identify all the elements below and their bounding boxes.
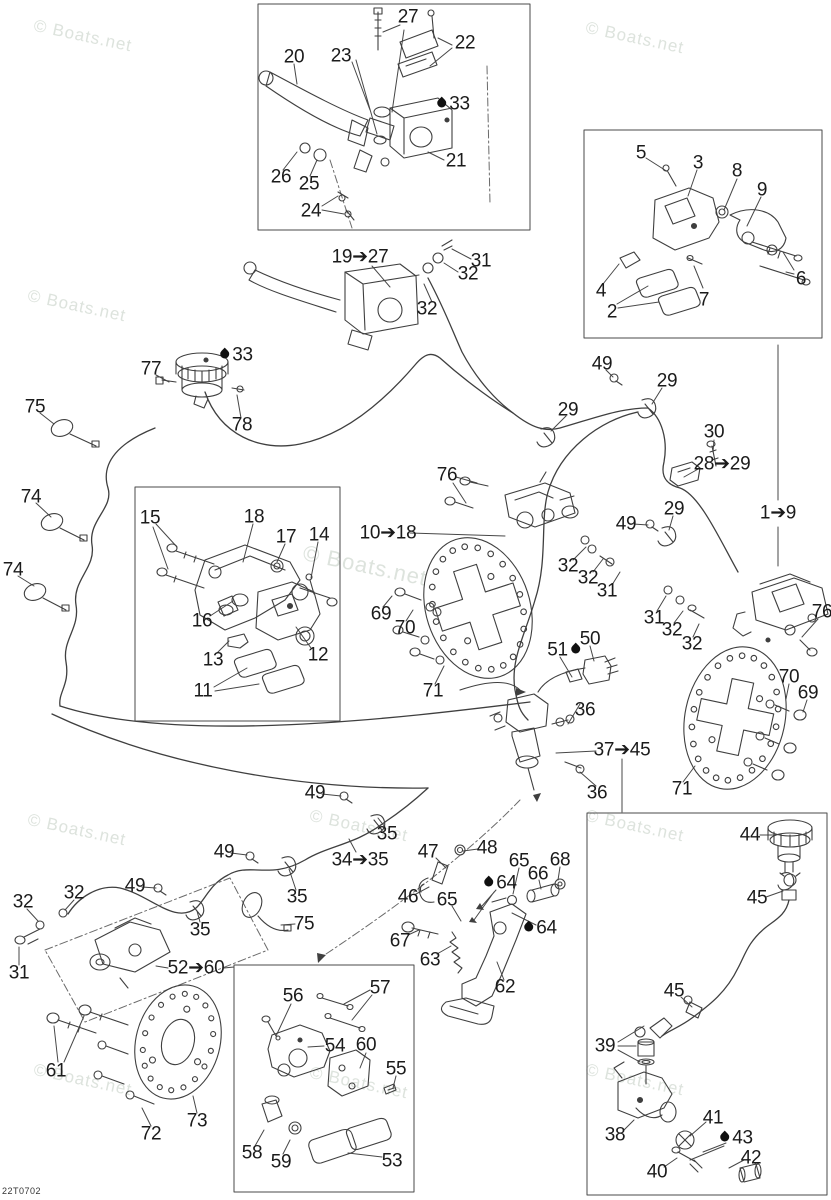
callout-label: 69 <box>371 605 392 624</box>
callout-label: 41 <box>703 1109 724 1128</box>
callout-number: 69 <box>371 605 392 624</box>
callout-label: 32 <box>578 569 599 588</box>
callout-number: 31 <box>9 964 30 983</box>
callout-number: 78 <box>232 416 253 435</box>
callout-label: 40 <box>647 1163 668 1182</box>
callout-number: 47 <box>418 843 439 862</box>
callout-label: 10➔18 <box>360 524 417 543</box>
callout-label: 35 <box>377 825 398 844</box>
callout-number: 33 <box>449 95 470 114</box>
callout-label: 77 <box>141 360 162 379</box>
callout-label: 42 <box>741 1149 762 1168</box>
callout-number: 40 <box>647 1163 668 1182</box>
callout-label: 29 <box>558 401 579 420</box>
callout-label: 76 <box>437 466 458 485</box>
callout-label: 67 <box>390 932 411 951</box>
callout-label: 64 <box>483 874 517 893</box>
callout-label: 3 <box>693 154 703 173</box>
callout-number: 35 <box>377 825 398 844</box>
callout-number: 8 <box>732 162 742 181</box>
callout-label: 19➔27 <box>332 248 389 267</box>
callout-number: 28➔29 <box>694 455 751 474</box>
callout-number: 1➔9 <box>760 504 796 523</box>
callout-label: 44 <box>740 826 761 845</box>
callout-label: 35 <box>190 921 211 940</box>
callout-number: 70 <box>779 668 800 687</box>
callout-number: 32 <box>13 893 34 912</box>
callout-number: 25 <box>299 175 320 194</box>
callout-number: 49 <box>125 877 146 896</box>
callout-label: 14 <box>309 526 330 545</box>
callout-number: 74 <box>21 488 42 507</box>
callout-number: 44 <box>740 826 761 845</box>
callout-label: 30 <box>704 423 725 442</box>
callout-number: 32 <box>578 569 599 588</box>
callout-number: 51 <box>547 641 568 660</box>
callout-label: 65 <box>437 891 458 910</box>
callout-number: 75 <box>294 915 315 934</box>
callout-label: 70 <box>395 619 416 638</box>
callout-label: 21 <box>446 152 467 171</box>
callout-number: 20 <box>284 48 305 67</box>
callout-number: 31 <box>597 582 618 601</box>
callout-number: 22 <box>455 34 476 53</box>
callout-number: 32 <box>682 635 703 654</box>
callout-number: 58 <box>242 1144 263 1163</box>
callout-number: 39 <box>595 1037 616 1056</box>
callout-number: 43 <box>732 1129 753 1148</box>
callout-label: 57 <box>370 979 391 998</box>
callout-number: 54 <box>325 1037 346 1056</box>
callout-number: 61 <box>46 1062 67 1081</box>
callout-label: 32 <box>662 621 683 640</box>
callout-number: 63 <box>420 951 441 970</box>
callout-label: 16 <box>192 612 213 631</box>
callout-number: 12 <box>308 646 329 665</box>
callout-label: 78 <box>232 416 253 435</box>
callout-number: 76 <box>812 603 831 622</box>
callout-label: 28➔29 <box>694 455 751 474</box>
callout-label: 60 <box>356 1036 377 1055</box>
callout-number: 11 <box>193 682 212 701</box>
callout-label: 58 <box>242 1144 263 1163</box>
callout-number: 5 <box>636 144 646 163</box>
callout-label: 68 <box>550 851 571 870</box>
callout-number: 29 <box>558 401 579 420</box>
callout-label: 53 <box>382 1152 403 1171</box>
callout-number: 30 <box>704 423 725 442</box>
callout-number: 33 <box>232 346 253 365</box>
callout-label: 5 <box>636 144 646 163</box>
callout-number: 69 <box>798 684 819 703</box>
callout-label: 47 <box>418 843 439 862</box>
callout-number: 32 <box>417 300 438 319</box>
callout-label: 25 <box>299 175 320 194</box>
diagram-code: 22T0702 <box>2 1186 41 1196</box>
callout-number: 45 <box>664 982 685 1001</box>
callout-number: 52➔60 <box>168 959 225 978</box>
callout-number: 26 <box>271 168 292 187</box>
callout-label: 37➔45 <box>594 741 651 760</box>
callout-number: 14 <box>309 526 330 545</box>
callout-label: 34➔35 <box>332 851 389 870</box>
callout-number: 50 <box>580 630 601 649</box>
callout-label: 1➔9 <box>760 504 796 523</box>
callout-number: 16 <box>192 612 213 631</box>
callout-label: 56 <box>283 987 304 1006</box>
callout-label: 12 <box>308 646 329 665</box>
callout-label: 20 <box>284 48 305 67</box>
callout-label: 59 <box>271 1153 292 1172</box>
callout-label: 32 <box>64 884 85 903</box>
callout-number: 49 <box>305 784 326 803</box>
callout-number: 29 <box>657 372 678 391</box>
callout-number: 71 <box>672 780 693 799</box>
callout-number: 32 <box>64 884 85 903</box>
callout-label: 45 <box>747 889 768 908</box>
callout-label: 63 <box>420 951 441 970</box>
callout-label: 33 <box>219 346 253 365</box>
callout-number: 41 <box>703 1109 724 1128</box>
callout-label: 46 <box>398 888 419 907</box>
callout-label: 45 <box>664 982 685 1001</box>
callout-label: 73 <box>187 1112 208 1131</box>
callout-number: 64 <box>536 919 557 938</box>
callout-label: 76 <box>812 603 831 622</box>
callout-label: 74 <box>21 488 42 507</box>
callout-label: 15 <box>140 509 161 528</box>
callout-label: 52➔60 <box>168 959 225 978</box>
callout-number: 65 <box>437 891 458 910</box>
callout-label: 24 <box>301 202 322 221</box>
callout-label: 32 <box>682 635 703 654</box>
callout-label: 31 <box>9 964 30 983</box>
callout-label: 55 <box>386 1060 407 1079</box>
callout-number: 48 <box>477 839 498 858</box>
brake-parts-diagram: © Boats.net© Boats.net© Boats.net© Boats… <box>0 0 831 1200</box>
callout-label: 75 <box>25 398 46 417</box>
callout-number: 42 <box>741 1149 762 1168</box>
brake-fluid-droplet-icon <box>218 348 231 361</box>
callout-number: 55 <box>386 1060 407 1079</box>
callout-number: 45 <box>747 889 768 908</box>
callout-label: 49 <box>305 784 326 803</box>
callout-number: 72 <box>141 1125 162 1144</box>
callout-label: 11 <box>193 682 212 701</box>
callout-label: 36 <box>575 701 596 720</box>
callout-label: 8 <box>732 162 742 181</box>
callout-number: 62 <box>495 978 516 997</box>
callout-number: 56 <box>283 987 304 1006</box>
callout-number: 71 <box>423 682 444 701</box>
callout-number: 49 <box>616 515 637 534</box>
callout-number: 18 <box>244 508 265 527</box>
callout-number: 2 <box>607 303 617 322</box>
callout-number: 74 <box>3 561 24 580</box>
callout-number: 7 <box>699 291 709 310</box>
callout-number: 32 <box>558 557 579 576</box>
callout-number: 49 <box>592 355 613 374</box>
callout-number: 35 <box>287 888 308 907</box>
callout-label: 49 <box>616 515 637 534</box>
callout-number: 6 <box>796 270 806 289</box>
callout-number: 57 <box>370 979 391 998</box>
callout-label: 32 <box>458 265 479 284</box>
callout-label: 74 <box>3 561 24 580</box>
callout-label: 49 <box>125 877 146 896</box>
callout-number: 75 <box>25 398 46 417</box>
callout-number: 60 <box>356 1036 377 1055</box>
callout-label: 29 <box>657 372 678 391</box>
callout-number: 17 <box>276 528 297 547</box>
callout-number: 3 <box>693 154 703 173</box>
callout-number: 21 <box>446 152 467 171</box>
callout-label: 2 <box>607 303 617 322</box>
callout-number: 32 <box>662 621 683 640</box>
callout-label: 27 <box>398 8 419 27</box>
callout-number: 36 <box>575 701 596 720</box>
callout-number: 35 <box>190 921 211 940</box>
callout-label: 17 <box>276 528 297 547</box>
callout-number: 77 <box>141 360 162 379</box>
callout-number: 67 <box>390 932 411 951</box>
callout-label: 61 <box>46 1062 67 1081</box>
callout-label: 64 <box>523 919 557 938</box>
callout-label: 33 <box>436 95 470 114</box>
brake-fluid-droplet-icon <box>435 97 448 110</box>
callout-number: 38 <box>605 1126 626 1145</box>
callout-label: 71 <box>423 682 444 701</box>
callout-number: 9 <box>757 181 767 200</box>
callout-label: 18 <box>244 508 265 527</box>
callout-number: 73 <box>187 1112 208 1131</box>
callout-label: 66 <box>528 865 549 884</box>
callout-number: 15 <box>140 509 161 528</box>
callout-number: 34➔35 <box>332 851 389 870</box>
callout-label: 31 <box>597 582 618 601</box>
callout-number: 10➔18 <box>360 524 417 543</box>
callout-number: 4 <box>596 282 606 301</box>
callout-label: 75 <box>294 915 315 934</box>
callout-label: 6 <box>796 270 806 289</box>
callout-label: 43 <box>719 1129 753 1148</box>
callout-label: 32 <box>417 300 438 319</box>
callout-number: 65 <box>509 852 530 871</box>
callout-number: 53 <box>382 1152 403 1171</box>
callout-label: 35 <box>287 888 308 907</box>
callout-number: 36 <box>587 784 608 803</box>
callout-label: 65 <box>509 852 530 871</box>
callout-label: 32 <box>13 893 34 912</box>
callout-number: 59 <box>271 1153 292 1172</box>
callout-label: 29 <box>664 500 685 519</box>
callout-label: 23 <box>331 47 352 66</box>
callout-label: 49 <box>214 843 235 862</box>
callout-layer: 27222320332126252419➔2731323253896427773… <box>0 0 831 1200</box>
callout-label: 50 <box>580 630 601 649</box>
callout-number: 46 <box>398 888 419 907</box>
callout-label: 39 <box>595 1037 616 1056</box>
callout-label: 70 <box>779 668 800 687</box>
callout-number: 13 <box>203 651 224 670</box>
callout-label: 69 <box>798 684 819 703</box>
callout-number: 64 <box>496 874 517 893</box>
callout-label: 54 <box>325 1037 346 1056</box>
callout-label: 9 <box>757 181 767 200</box>
callout-number: 19➔27 <box>332 248 389 267</box>
callout-label: 36 <box>587 784 608 803</box>
brake-fluid-droplet-icon <box>522 921 535 934</box>
callout-number: 29 <box>664 500 685 519</box>
callout-label: 4 <box>596 282 606 301</box>
callout-label: 7 <box>699 291 709 310</box>
callout-number: 37➔45 <box>594 741 651 760</box>
callout-label: 51 <box>547 641 581 660</box>
callout-label: 71 <box>672 780 693 799</box>
callout-number: 76 <box>437 466 458 485</box>
callout-number: 49 <box>214 843 235 862</box>
brake-fluid-droplet-icon <box>718 1131 731 1144</box>
callout-label: 48 <box>477 839 498 858</box>
callout-number: 68 <box>550 851 571 870</box>
callout-label: 38 <box>605 1126 626 1145</box>
callout-label: 26 <box>271 168 292 187</box>
callout-number: 24 <box>301 202 322 221</box>
callout-number: 27 <box>398 8 419 27</box>
callout-label: 72 <box>141 1125 162 1144</box>
callout-label: 62 <box>495 978 516 997</box>
callout-number: 23 <box>331 47 352 66</box>
callout-label: 13 <box>203 651 224 670</box>
callout-number: 66 <box>528 865 549 884</box>
callout-number: 70 <box>395 619 416 638</box>
callout-number: 32 <box>458 265 479 284</box>
callout-label: 32 <box>558 557 579 576</box>
callout-label: 22 <box>455 34 476 53</box>
brake-fluid-droplet-icon <box>482 876 495 889</box>
callout-label: 49 <box>592 355 613 374</box>
